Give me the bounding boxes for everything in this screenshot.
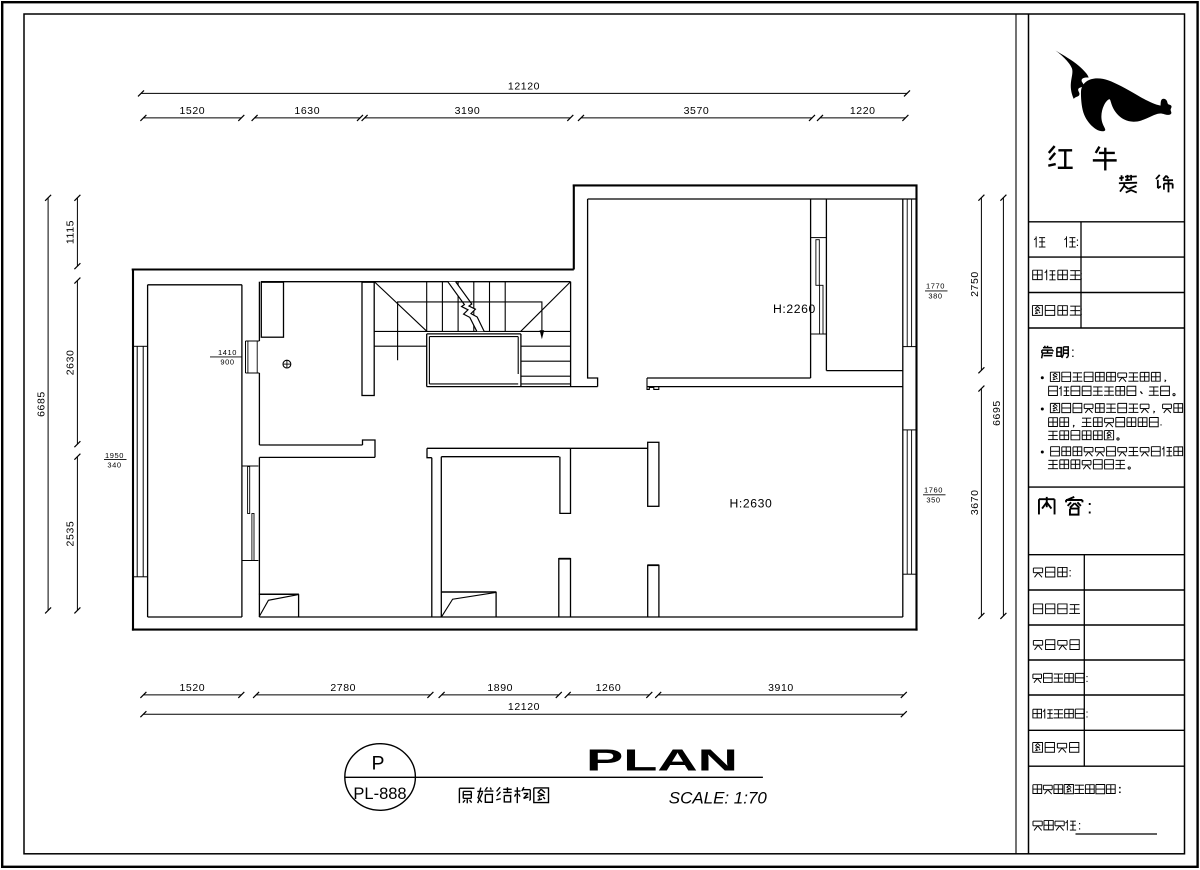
svg-text:12120: 12120 xyxy=(508,701,540,713)
svg-text:SCALE: 1:70: SCALE: 1:70 xyxy=(669,789,768,808)
svg-text:6685: 6685 xyxy=(36,391,48,417)
svg-text:6695: 6695 xyxy=(991,400,1003,426)
svg-text:PLAN: PLAN xyxy=(586,744,738,778)
svg-text:1890: 1890 xyxy=(487,682,513,694)
svg-text::: : xyxy=(1078,820,1081,833)
svg-text:380: 380 xyxy=(928,292,942,301)
svg-text:1410: 1410 xyxy=(218,348,237,357)
svg-text::: : xyxy=(1069,567,1072,580)
svg-text:P: P xyxy=(371,753,384,775)
svg-text::: : xyxy=(1086,673,1089,685)
svg-text:12120: 12120 xyxy=(508,81,540,93)
svg-text:350: 350 xyxy=(926,496,940,505)
svg-text::: : xyxy=(1080,268,1083,282)
svg-text:.: . xyxy=(1160,417,1163,429)
svg-text:340: 340 xyxy=(107,460,121,469)
svg-text:2535: 2535 xyxy=(65,521,77,547)
svg-text:2630: 2630 xyxy=(65,350,77,376)
svg-text:1630: 1630 xyxy=(294,105,320,117)
svg-text:1950: 1950 xyxy=(105,451,124,460)
svg-text:1770: 1770 xyxy=(926,282,945,291)
svg-text:PL-888: PL-888 xyxy=(353,785,406,803)
svg-text::: : xyxy=(1071,345,1075,360)
svg-text:1220: 1220 xyxy=(850,105,876,117)
svg-text:1260: 1260 xyxy=(596,682,622,694)
svg-text:900: 900 xyxy=(220,358,234,367)
svg-text:1520: 1520 xyxy=(179,682,205,694)
svg-text:3670: 3670 xyxy=(969,489,981,515)
svg-text:2750: 2750 xyxy=(969,271,981,297)
svg-text:H:2630: H:2630 xyxy=(730,497,773,511)
svg-text::: : xyxy=(1080,304,1083,318)
svg-text:2780: 2780 xyxy=(330,682,356,694)
svg-text:3570: 3570 xyxy=(684,105,710,117)
svg-text:1115: 1115 xyxy=(65,220,77,244)
svg-text::: : xyxy=(1076,235,1079,249)
svg-text:3190: 3190 xyxy=(455,105,481,117)
svg-text:1760: 1760 xyxy=(924,486,943,495)
svg-text:1520: 1520 xyxy=(179,105,205,117)
svg-text:3910: 3910 xyxy=(768,682,794,694)
svg-text::: : xyxy=(1086,709,1089,721)
svg-text:H:2260: H:2260 xyxy=(773,302,816,316)
svg-text::: : xyxy=(1087,497,1092,519)
